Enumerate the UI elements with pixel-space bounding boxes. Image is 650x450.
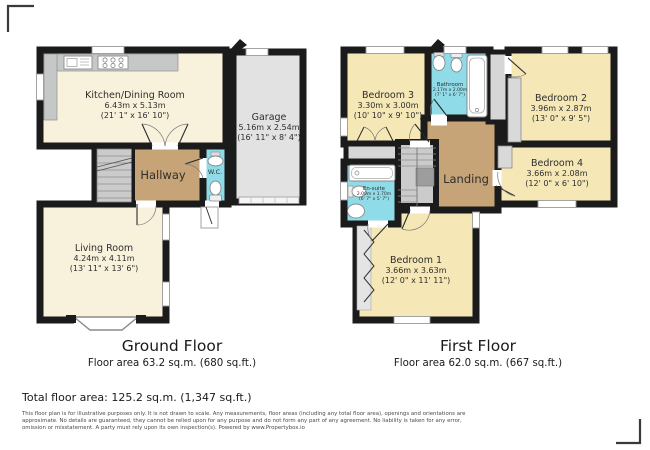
room-name: Garage [237, 112, 300, 123]
ground-floor-title: Ground Floor [122, 337, 223, 355]
disclaimer: This floor plan is for illustrative purp… [22, 411, 465, 433]
room-dims-imperial: (12' 0" x 11' 11") [382, 276, 451, 286]
kitchen-counter-side [44, 54, 57, 120]
room-name: Bedroom 4 [525, 158, 588, 169]
room-dims-metric: 3.66m x 3.63m [382, 266, 451, 276]
room-name: Bedroom 2 [530, 93, 591, 104]
stairs-ground [97, 147, 135, 204]
room-dims-imperial: (10' 10" x 9' 10") [354, 111, 423, 121]
room-name: Landing [443, 174, 489, 185]
sink-icon [433, 56, 445, 71]
garage-label: Garage 5.16m x 2.54m (16' 11" x 8' 4") [237, 112, 300, 143]
room-dims-metric: 3.30m x 3.00m [354, 101, 423, 111]
ground-floor-plan [37, 39, 304, 330]
disclaimer-line-3: omission or misstatement. A party must r… [22, 425, 465, 432]
room-dims-metric: 3.66m x 2.08m [525, 169, 588, 179]
crop-mark-bottom-right [616, 419, 640, 443]
bedroom2-label: Bedroom 2 3.96m x 2.87m (13' 0" x 9' 5") [530, 93, 591, 124]
room-name: Bedroom 1 [382, 255, 451, 266]
room-dims-metric: 3.96m x 2.87m [530, 104, 591, 114]
room-dims-imperial: (7' 1" x 6' 7") [433, 93, 467, 98]
sink-icon [208, 156, 223, 166]
first-floor-area: Floor area 62.0 sq.m. (667 sq.ft.) [394, 358, 562, 369]
stairs-first [398, 142, 436, 206]
room-name: Bedroom 3 [354, 90, 423, 101]
landing-label: Landing [443, 174, 489, 185]
bathtub-icon [467, 55, 487, 117]
bedroom1-label: Bedroom 1 3.66m x 3.63m (12' 0" x 11' 11… [382, 255, 451, 286]
ground-floor-area: Floor area 63.2 sq.m. (680 sq.ft.) [88, 358, 256, 369]
bay-window [66, 315, 146, 330]
room-name: Kitchen/Dining Room [85, 90, 185, 101]
room-dims-imperial: (12' 0" x 6' 10") [525, 179, 588, 189]
disclaimer-line-2: approximate. No details are guaranteed, … [22, 418, 465, 425]
room-name: Living Room [70, 243, 139, 254]
ensuite-label: En-suite 2.00m x 1.70m (6' 7" x 5' 7") [357, 186, 391, 202]
sink-unit-icon [64, 56, 92, 69]
kitchen-label: Kitchen/Dining Room 6.43m x 5.13m (21' 1… [85, 90, 185, 121]
room-name: Hallway [140, 170, 185, 181]
garage-door [239, 197, 299, 204]
hob-icon [98, 56, 128, 69]
room-dims-imperial: (13' 11" x 13' 6") [70, 264, 139, 274]
wc-label: W.C. [208, 168, 222, 176]
room-dims-metric: 5.16m x 2.54m [237, 123, 300, 133]
room-dims-imperial: (13' 0" x 9' 5") [530, 114, 591, 124]
bedroom4-label: Bedroom 4 3.66m x 2.08m (12' 0" x 6' 10"… [525, 158, 588, 189]
toilet-icon [210, 181, 221, 195]
room-dims-metric: 4.24m x 4.11m [70, 254, 139, 264]
hallway-label: Hallway [140, 170, 185, 181]
floorplan-canvas: Kitchen/Dining Room 6.43m x 5.13m (21' 1… [0, 0, 650, 450]
crop-mark-top-left [8, 6, 34, 32]
sink-icon [348, 204, 365, 218]
floorplan-drawing [0, 0, 650, 450]
living-room-label: Living Room 4.24m x 4.11m (13' 11" x 13'… [70, 243, 139, 274]
room-name: W.C. [208, 168, 222, 176]
toilet-icon [451, 58, 462, 72]
room-dims-imperial: (6' 7" x 5' 7") [357, 197, 391, 202]
total-floor-area: Total floor area: 125.2 sq.m. (1,347 sq.… [22, 391, 252, 404]
room-dims-imperial: (16' 11" x 8' 4") [237, 133, 300, 143]
room-dims-imperial: (21' 1" x 16' 10") [85, 111, 185, 121]
bathroom-label: Bathroom 2.17m x 2.00m (7' 1" x 6' 7") [433, 82, 467, 98]
first-floor-title: First Floor [440, 337, 516, 355]
room-dims-metric: 6.43m x 5.13m [85, 101, 185, 111]
bedroom3-label: Bedroom 3 3.30m x 3.00m (10' 10" x 9' 10… [354, 90, 423, 121]
disclaimer-line-1: This floor plan is for illustrative purp… [22, 411, 465, 418]
